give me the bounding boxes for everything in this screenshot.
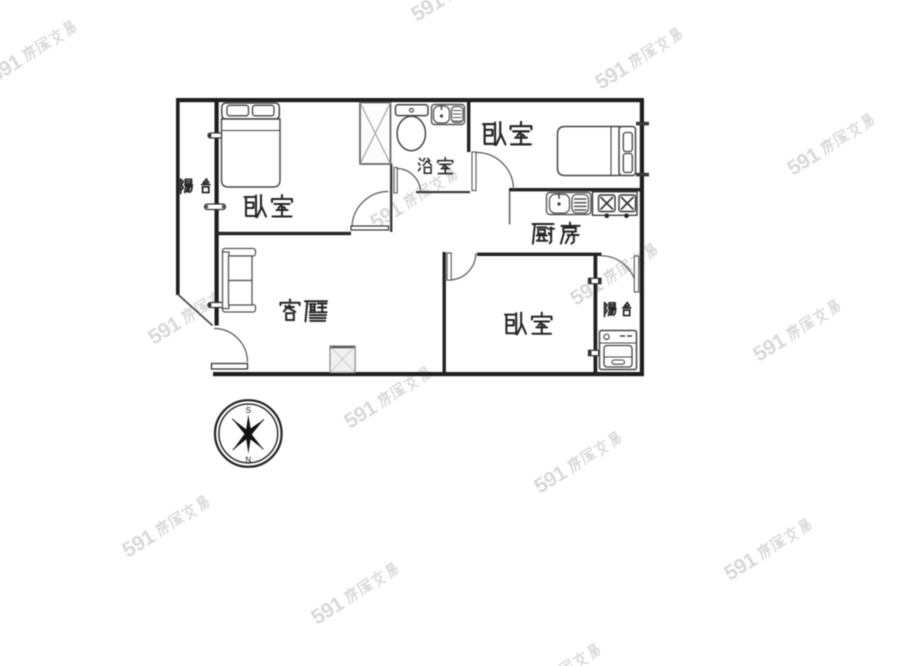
svg-text:S: S xyxy=(246,406,251,415)
svg-text:N: N xyxy=(245,456,251,465)
